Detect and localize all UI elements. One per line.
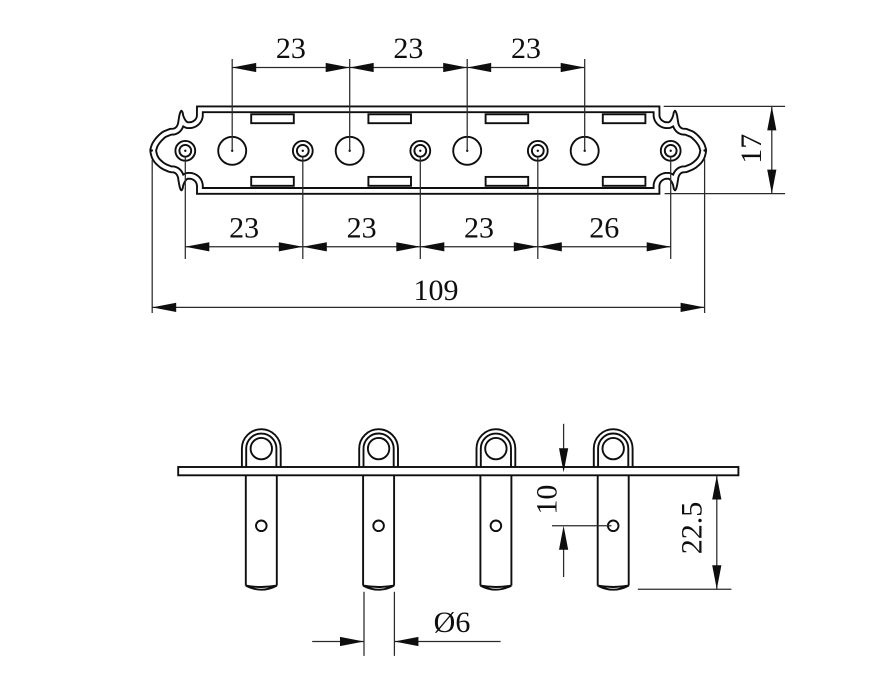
svg-text:23: 23 (347, 212, 377, 245)
svg-text:26: 26 (589, 212, 619, 245)
svg-text:109: 109 (414, 274, 459, 307)
svg-text:22.5: 22.5 (676, 502, 709, 555)
svg-text:10: 10 (531, 485, 564, 515)
svg-text:17: 17 (735, 134, 768, 164)
svg-text:23: 23 (464, 212, 494, 245)
svg-text:23: 23 (511, 32, 541, 65)
svg-text:23: 23 (276, 32, 306, 65)
svg-text:23: 23 (229, 212, 259, 245)
svg-text:Ø6: Ø6 (434, 606, 471, 639)
svg-text:23: 23 (393, 32, 423, 65)
